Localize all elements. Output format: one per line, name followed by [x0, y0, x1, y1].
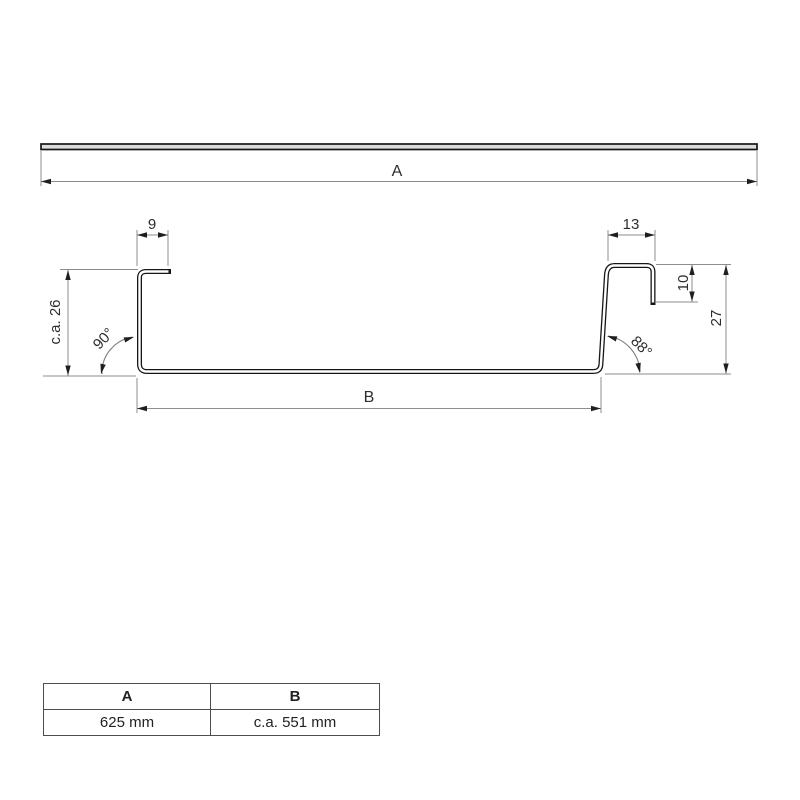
dim-27-label: 27 — [708, 310, 725, 327]
angle-90-label: 90° — [90, 325, 118, 353]
sheet-bar — [41, 144, 757, 150]
dimension-27: 27 — [605, 265, 731, 375]
profile-core — [140, 266, 654, 372]
dim-13-label: 13 — [623, 216, 640, 233]
angle-90: 90° — [90, 325, 135, 375]
dimension-13: 13 — [608, 216, 655, 261]
dim-a-label: A — [392, 163, 403, 180]
dim-9-label: 9 — [148, 216, 156, 233]
technical-drawing-page: A 9 13 10 — [0, 0, 800, 800]
dimension-10: 10 — [656, 265, 698, 303]
dim-b-label: B — [364, 389, 375, 406]
table-value-row: 625 mm c.a. 551 mm — [44, 710, 380, 736]
table-header-row: A B — [44, 684, 380, 710]
table-header-a: A — [44, 684, 211, 710]
dimensions-table: A B 625 mm c.a. 551 mm — [43, 683, 380, 736]
table-value-b: c.a. 551 mm — [211, 710, 380, 736]
dimension-a: A — [41, 151, 757, 186]
profile-cross-section — [140, 266, 654, 372]
angle-88: 88° — [606, 333, 655, 374]
profile-outline — [140, 266, 654, 372]
top-view-sheet — [41, 144, 757, 150]
profile-drawing-canvas: A 9 13 10 — [0, 0, 800, 800]
dim-ca26-label: c.a. 26 — [47, 299, 64, 344]
angle-88-label: 88° — [627, 333, 655, 361]
table-value-a: 625 mm — [44, 710, 211, 736]
dimension-9: 9 — [137, 216, 168, 266]
dimension-b: B — [137, 377, 601, 413]
dim-10-label: 10 — [675, 275, 692, 292]
table-header-b: B — [211, 684, 380, 710]
dimension-ca26: c.a. 26 — [43, 270, 138, 377]
